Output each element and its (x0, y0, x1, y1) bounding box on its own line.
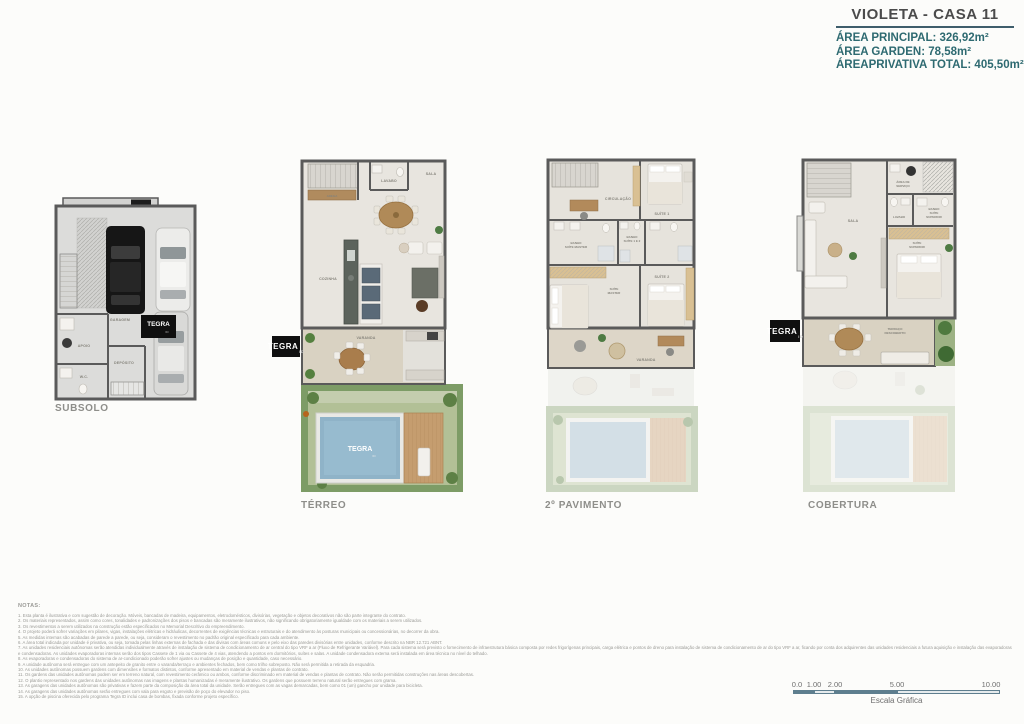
room-label-lavabo: LAVABO (381, 179, 397, 183)
white-car (156, 228, 190, 311)
scale-bar (793, 690, 1000, 694)
title-rule (836, 26, 1014, 28)
svg-text:SUÍTE 1 E 2: SUÍTE 1 E 2 (624, 238, 641, 243)
tegra-pool-logo: TEGRA (348, 446, 373, 453)
room-label-deposito: DEPÓSITO (114, 360, 134, 365)
floorplan-2-pavimento: VARANDA SUÍTE 1 CIRCULAÇÃO (540, 158, 702, 494)
ghost-lower-level (546, 368, 698, 492)
room-label-wc: W.C. (80, 375, 89, 379)
room-label-suite1: SUÍTE 1 (655, 211, 670, 216)
wood-deck (404, 413, 443, 483)
title-block: VIOLETA - CASA 11 ÁREA PRINCIPAL: 326,92… (836, 6, 1014, 73)
caption-cobertura: COBERTURA (808, 500, 877, 511)
room-label-apoio: APOIO (78, 344, 91, 348)
room-label-circulacao: CIRCULAÇÃO (605, 196, 631, 201)
caption-pavimento2: 2º PAVIMENTO (545, 500, 622, 511)
svg-text:MASTER: MASTER (608, 291, 622, 295)
interior: ÁREA DE SERVIÇO LAVABO BANHO SUÍTE SUPER… (797, 160, 955, 318)
scale-tick: 2.00 (828, 680, 843, 689)
interior: ADEGA LAVABO (302, 161, 445, 328)
varanda: VARANDA (548, 328, 694, 368)
svg-text:SUPERIOR: SUPERIOR (909, 245, 926, 249)
varanda: VARANDA (302, 328, 445, 384)
area-privativa-total: ÁREAPRIVATIVA TOTAL: 405,50m² (836, 59, 1014, 73)
tegra-tab-cobertura: TEGRAID (770, 320, 800, 342)
svg-text:TEGRA: TEGRA (147, 321, 170, 328)
area-principal: ÁREA PRINCIPAL: 326,92m² (836, 32, 1014, 46)
svg-text:SERVIÇO: SERVIÇO (896, 184, 910, 188)
floorplan-terreo: TEGRA ID VARANDA (300, 158, 465, 496)
floorplan-subsolo: TEGRA ID GARAGEM APOIO DEPÓSITO W.C. (53, 196, 198, 402)
scale-tick: 5.00 (890, 680, 905, 689)
room-label-suite2: SUÍTE 2 (655, 274, 670, 279)
scale-tick: 10.00 (982, 680, 1001, 689)
caption-terreo: TÉRREO (301, 500, 346, 511)
ramp-hatch (77, 218, 107, 308)
brochure-page: VIOLETA - CASA 11 ÁREA PRINCIPAL: 326,92… (0, 0, 1024, 724)
room-label-garagem: GARAGEM (110, 318, 130, 322)
tegra-logo-subsolo: TEGRA ID (141, 315, 176, 338)
svg-text:SUÍTE MASTER: SUÍTE MASTER (565, 244, 588, 249)
notes-heading: NOTAS: (18, 603, 1013, 609)
pool: TEGRA ID (316, 413, 404, 483)
caption-subsolo: SUBSOLO (55, 403, 109, 414)
room-label-adega: ADEGA (327, 194, 339, 198)
floorplan-cobertura: TERRAÇO DESCOBERTO ÁREA DE SERVIÇO LAVAB… (795, 158, 960, 494)
svg-text:DESCOBERTO: DESCOBERTO (884, 331, 906, 335)
interior: SUÍTE 1 CIRCULAÇÃO BANHO SUÍTE MASTER BA… (548, 160, 694, 328)
graphic-scale: 0.0 1.00 2.00 5.00 10.00 Escala Gráfica (793, 680, 1000, 705)
scale-label: Escala Gráfica (793, 696, 1000, 705)
scale-tick: 0.0 (792, 680, 802, 689)
tegra-tab-terreo: TEGRAID (272, 336, 300, 357)
area-garden: ÁREA GARDEN: 78,58m² (836, 46, 1014, 60)
room-label-cozinha: COZINHA (319, 277, 337, 281)
page-title: VIOLETA - CASA 11 (836, 6, 1014, 23)
svg-text:SUPERIOR: SUPERIOR (926, 215, 943, 219)
gate (131, 200, 151, 205)
room-label-varanda: VARANDA (636, 358, 655, 362)
room-label-lavabo: LAVABO (893, 215, 906, 219)
room-label-sala: SALA (426, 172, 437, 176)
room-label-varanda: VARANDA (356, 336, 375, 340)
room-label-sala: SALA (848, 219, 859, 223)
terraco-descoberto: TERRAÇO DESCOBERTO (803, 318, 955, 366)
black-car (106, 226, 145, 314)
staircase (60, 254, 77, 308)
floor-grate (111, 382, 144, 395)
note-item: 7. As unidades residenciais autônomas se… (18, 645, 1013, 656)
scale-ticks: 0.0 1.00 2.00 5.00 10.00 (793, 680, 1000, 689)
ghost-lower-levels (803, 366, 955, 492)
scale-tick: 1.00 (807, 680, 822, 689)
